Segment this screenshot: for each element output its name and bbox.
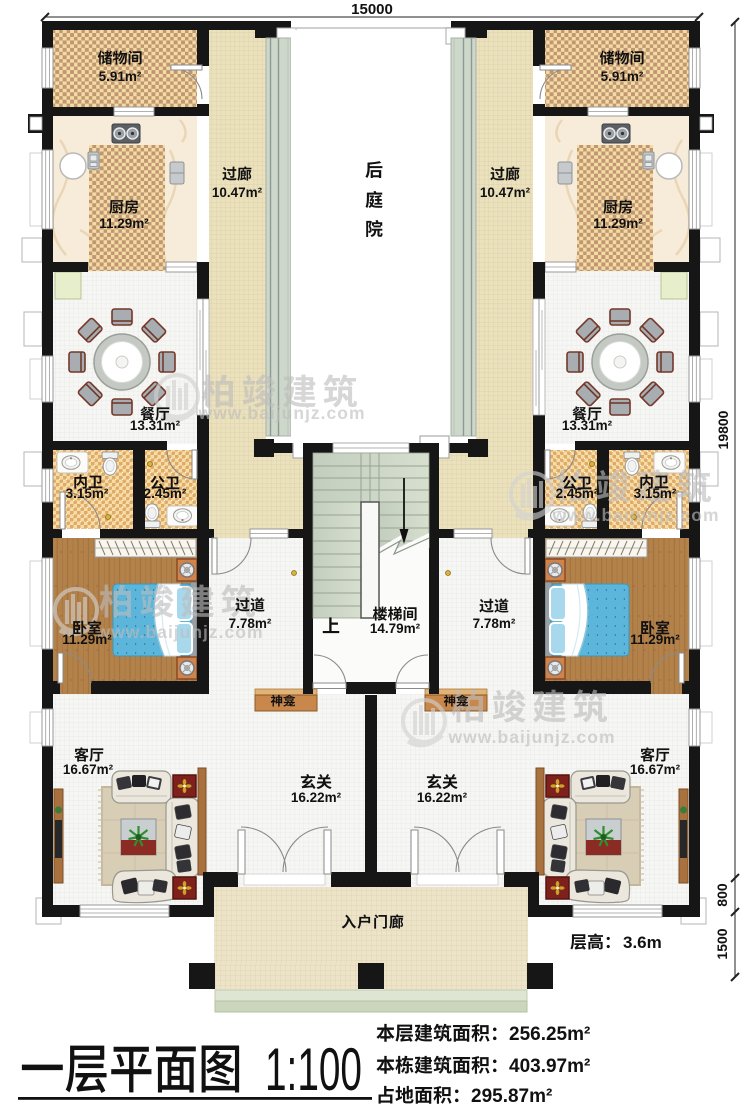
svg-text:1500: 1500 [714, 928, 730, 959]
svg-text:2.45m²: 2.45m² [556, 486, 599, 501]
svg-text:13.31m²: 13.31m² [130, 418, 181, 433]
svg-text:11.29m²: 11.29m² [630, 632, 680, 647]
svg-text:1:100: 1:100 [265, 1036, 362, 1103]
svg-text:3.6m: 3.6m [623, 933, 662, 952]
svg-text:16.67m²: 16.67m² [630, 762, 681, 777]
svg-text:14.79m²: 14.79m² [370, 621, 421, 636]
svg-text:www.baijunjz.com: www.baijunjz.com [447, 727, 615, 747]
svg-text:256.25m²: 256.25m² [509, 1024, 590, 1045]
svg-text:10.47m²: 10.47m² [212, 185, 263, 200]
svg-text:15000: 15000 [351, 1, 393, 18]
svg-text:16.22m²: 16.22m² [291, 790, 342, 805]
svg-text:800: 800 [714, 883, 730, 907]
svg-text:3.15m²: 3.15m² [634, 486, 677, 501]
svg-text:19800: 19800 [715, 410, 731, 449]
svg-text:2.45m²: 2.45m² [144, 486, 187, 501]
svg-text:13.31m²: 13.31m² [562, 418, 613, 433]
svg-text:7.78m²: 7.78m² [473, 616, 516, 631]
svg-text:11.29m²: 11.29m² [99, 216, 149, 231]
svg-text:11.29m²: 11.29m² [593, 216, 643, 231]
svg-text:www.baijunjz.com: www.baijunjz.com [551, 505, 719, 525]
svg-text:10.47m²: 10.47m² [480, 185, 531, 200]
svg-text:16.67m²: 16.67m² [63, 762, 114, 777]
svg-text:16.22m²: 16.22m² [417, 790, 468, 805]
svg-text:403.97m²: 403.97m² [509, 1056, 590, 1077]
svg-text:7.78m²: 7.78m² [229, 616, 272, 631]
svg-text:295.87m²: 295.87m² [471, 1086, 552, 1107]
svg-text:www.baijunjz.com: www.baijunjz.com [197, 403, 365, 423]
svg-text:5.91m²: 5.91m² [99, 69, 142, 84]
svg-text:3.15m²: 3.15m² [66, 486, 109, 501]
svg-text:5.91m²: 5.91m² [601, 69, 644, 84]
svg-text:11.29m²: 11.29m² [62, 632, 112, 647]
